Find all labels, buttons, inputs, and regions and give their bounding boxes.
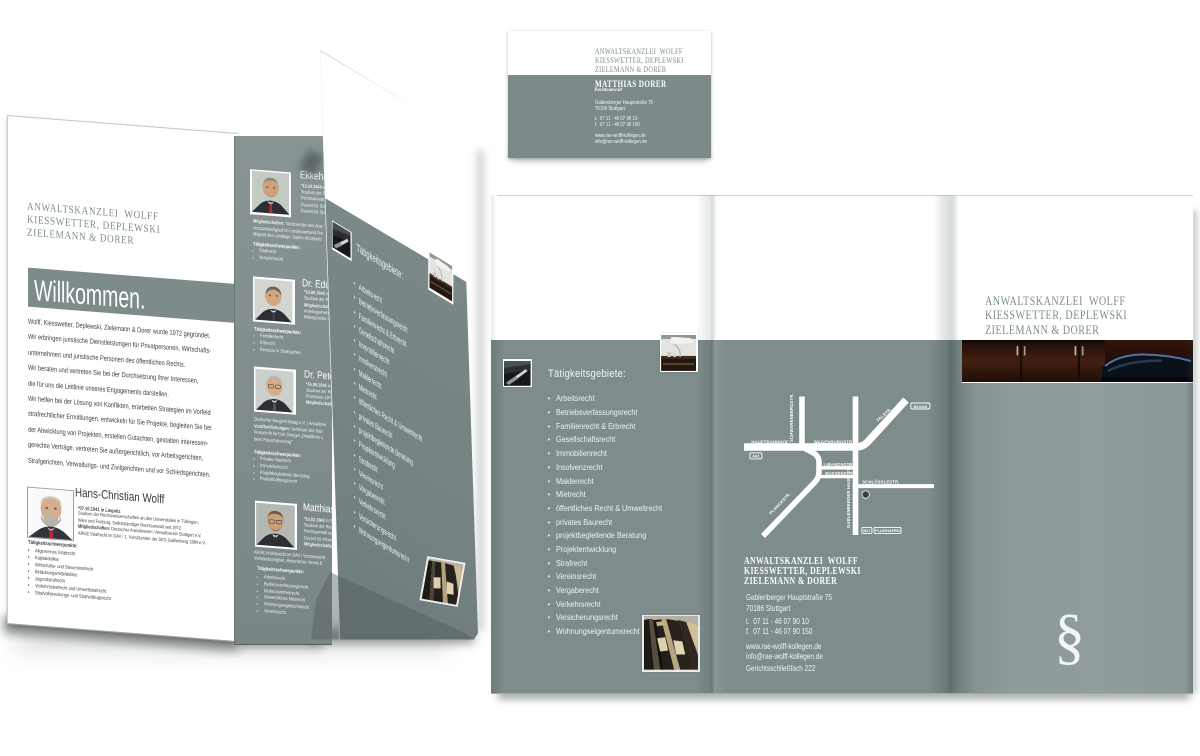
svg-text:HAUPTBAHNHOF: HAUPTBAHNHOF	[751, 440, 789, 445]
svg-text:SCHWARENBERGSTR.: SCHWARENBERGSTR.	[789, 393, 794, 442]
svg-text:FLUGHAFEN: FLUGHAFEN	[875, 528, 900, 533]
svg-text:B27: B27	[863, 528, 871, 533]
svg-text:A81: A81	[752, 454, 760, 459]
svg-text:B10/A8: B10/A8	[914, 404, 928, 409]
svg-text:SCHLÖSSLESTR.: SCHLÖSSLESTR.	[862, 480, 899, 485]
svg-text:GABLENBERGER HAUPTSTR.: GABLENBERGER HAUPTSTR.	[846, 464, 851, 528]
svg-text:WAGENBURGSTR.: WAGENBURGSTR.	[814, 440, 854, 445]
